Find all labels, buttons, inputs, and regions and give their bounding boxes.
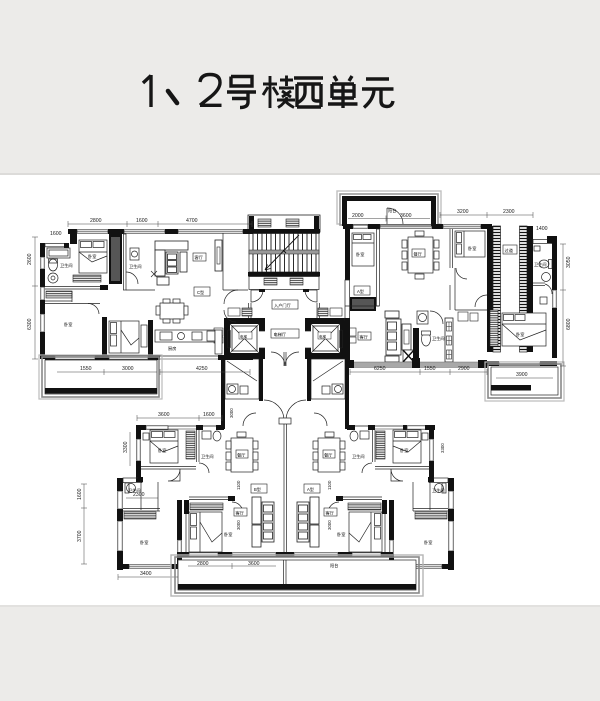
svg-text:卧室: 卧室 (516, 331, 524, 338)
svg-text:卫生间: 卫生间 (534, 261, 547, 268)
svg-text:1600: 1600 (203, 412, 215, 418)
svg-text:厨房: 厨房 (168, 345, 176, 352)
svg-text:卫生间: 卫生间 (201, 453, 214, 460)
svg-text:卧室: 卧室 (158, 447, 166, 454)
svg-text:餐厅: 餐厅 (414, 251, 422, 258)
svg-text:4250: 4250 (196, 366, 208, 372)
svg-text:2300: 2300 (503, 209, 515, 215)
svg-text:3600: 3600 (158, 412, 170, 418)
svg-text:1600: 1600 (136, 218, 148, 224)
svg-text:过道: 过道 (505, 247, 514, 254)
svg-text:3300: 3300 (123, 441, 129, 453)
svg-text:1100: 1100 (236, 480, 241, 490)
svg-text:3200: 3200 (457, 209, 469, 215)
svg-text:6300: 6300 (27, 318, 33, 330)
svg-text:卫生间: 卫生间 (129, 263, 142, 270)
svg-text:电梯: 电梯 (240, 334, 247, 339)
svg-text:入户门厅: 入户门厅 (274, 302, 291, 309)
svg-text:1100: 1100 (327, 480, 332, 490)
svg-text:3000: 3000 (122, 366, 134, 372)
svg-text:客厅: 客厅 (236, 510, 244, 517)
svg-text:卧室: 卧室 (88, 253, 96, 260)
svg-text:2300: 2300 (133, 492, 145, 498)
svg-text:1400: 1400 (536, 226, 548, 232)
svg-text:卫生间: 卫生间 (352, 453, 365, 460)
svg-text:电梯厅: 电梯厅 (274, 331, 287, 338)
svg-text:客厅: 客厅 (360, 334, 368, 341)
svg-text:1550: 1550 (80, 366, 92, 372)
svg-text:2800: 2800 (90, 218, 102, 224)
svg-text:阳台: 阳台 (330, 562, 338, 569)
svg-text:卫生间: 卫生间 (432, 487, 445, 494)
svg-text:电梯: 电梯 (319, 334, 327, 339)
svg-text:2900: 2900 (458, 366, 470, 372)
svg-text:3050: 3050 (566, 256, 572, 268)
svg-text:餐厅: 餐厅 (237, 452, 245, 459)
svg-text:2600: 2600 (27, 253, 33, 265)
svg-text:餐厅: 餐厅 (324, 452, 332, 459)
svg-text:C型: C型 (197, 289, 204, 295)
svg-text:3400: 3400 (140, 571, 152, 577)
svg-text:卧室: 卧室 (224, 531, 232, 538)
svg-text:卧室: 卧室 (424, 539, 432, 546)
svg-text:卫生间: 卫生间 (60, 262, 73, 269)
svg-text:3600: 3600 (248, 561, 260, 567)
svg-text:3300: 3300 (440, 443, 445, 453)
svg-text:6800: 6800 (566, 318, 572, 330)
svg-text:卧室: 卧室 (400, 447, 408, 454)
svg-text:2800: 2800 (197, 561, 209, 567)
svg-text:1600: 1600 (77, 488, 83, 500)
svg-text:2000: 2000 (352, 213, 364, 219)
svg-text:卧室: 卧室 (356, 251, 364, 258)
svg-text:3000: 3000 (327, 520, 332, 530)
svg-text:3900: 3900 (516, 372, 528, 378)
svg-text:3000: 3000 (236, 520, 241, 530)
svg-text:卧室: 卧室 (337, 531, 345, 538)
svg-text:A型: A型 (357, 288, 364, 294)
svg-text:客厅: 客厅 (326, 510, 334, 517)
svg-text:卫生间: 卫生间 (432, 335, 445, 342)
svg-text:3600: 3600 (400, 213, 412, 219)
svg-text:4700: 4700 (186, 218, 198, 224)
svg-text:6250: 6250 (374, 366, 386, 372)
svg-text:3700: 3700 (77, 530, 83, 542)
svg-text:1550: 1550 (424, 366, 436, 372)
svg-text:卧室: 卧室 (140, 539, 148, 546)
svg-text:卧室: 卧室 (468, 245, 476, 252)
svg-text:B型: B型 (254, 486, 261, 492)
svg-text:1600: 1600 (50, 231, 62, 237)
svg-text:A型: A型 (307, 486, 314, 492)
svg-text:客厅: 客厅 (195, 254, 203, 261)
svg-text:3000: 3000 (229, 408, 234, 418)
svg-text:卧室: 卧室 (64, 321, 72, 328)
